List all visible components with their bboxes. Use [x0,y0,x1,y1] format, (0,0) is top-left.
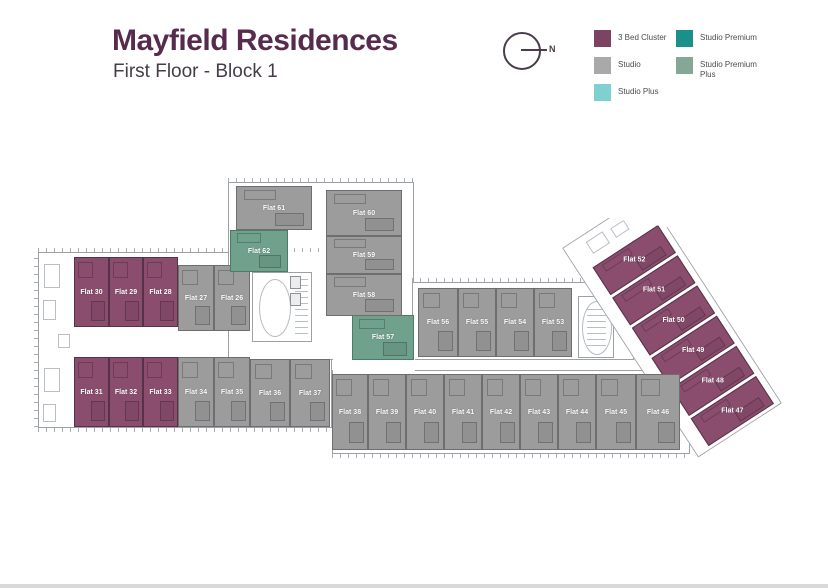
flat-unit-label: Flat 26 [221,295,243,302]
lift-shaft [290,276,301,289]
flat-unit-61[interactable]: Flat 61 [236,186,312,230]
flat-unit-37[interactable]: Flat 37 [290,359,330,427]
flat-unit-label: Flat 58 [353,292,375,299]
flat-unit-label: Flat 50 [662,317,684,324]
flat-unit-54[interactable]: Flat 54 [496,288,534,357]
flat-unit-43[interactable]: Flat 43 [520,374,558,450]
edge-ticks [332,454,690,458]
flat-unit-34[interactable]: Flat 34 [178,357,214,427]
flat-unit-label: Flat 35 [221,389,243,396]
flat-unit-27[interactable]: Flat 27 [178,265,214,331]
flat-unit-38[interactable]: Flat 38 [332,374,368,450]
flat-unit-56[interactable]: Flat 56 [418,288,458,357]
flat-unit-label: Flat 52 [623,257,645,264]
flat-unit-30[interactable]: Flat 30 [74,257,109,327]
flat-unit-label: Flat 40 [414,409,436,416]
flat-unit-label: Flat 46 [647,409,669,416]
flat-unit-label: Flat 27 [185,295,207,302]
flat-unit-label: Flat 29 [115,289,137,296]
stair-oval [259,279,291,337]
lift-shaft [290,293,301,306]
flat-unit-label: Flat 43 [528,409,550,416]
flat-unit-33[interactable]: Flat 33 [143,357,178,427]
flat-unit-label: Flat 44 [566,409,588,416]
page-bottom-border [0,584,828,588]
furniture-outline [44,368,60,392]
stair-steps [587,309,606,347]
flat-unit-29[interactable]: Flat 29 [109,257,143,327]
flat-unit-label: Flat 61 [263,205,285,212]
flat-unit-label: Flat 31 [80,389,102,396]
edge-ticks [38,428,332,432]
flat-unit-41[interactable]: Flat 41 [444,374,482,450]
flat-unit-label: Flat 36 [259,390,281,397]
flat-unit-55[interactable]: Flat 55 [458,288,496,357]
flat-unit-label: Flat 28 [149,289,171,296]
flat-unit-label: Flat 56 [427,319,449,326]
flat-unit-label: Flat 41 [452,409,474,416]
flat-unit-60[interactable]: Flat 60 [326,190,402,236]
furniture-outline [44,264,60,288]
flat-unit-label: Flat 37 [299,390,321,397]
flat-unit-32[interactable]: Flat 32 [109,357,143,427]
flat-unit-62[interactable]: Flat 62 [230,230,288,272]
flat-unit-26[interactable]: Flat 26 [214,265,250,331]
flat-unit-label: Flat 30 [80,289,102,296]
flat-unit-label: Flat 49 [682,347,704,354]
stairwell-core [252,272,312,342]
furniture-outline [610,220,629,238]
flat-unit-46[interactable]: Flat 46 [636,374,680,450]
flat-unit-45[interactable]: Flat 45 [596,374,636,450]
flat-unit-40[interactable]: Flat 40 [406,374,444,450]
flat-unit-label: Flat 59 [353,252,375,259]
flat-unit-label: Flat 54 [504,319,526,326]
flat-unit-label: Flat 45 [605,409,627,416]
flat-unit-31[interactable]: Flat 31 [74,357,109,427]
edge-ticks [34,253,38,427]
flat-unit-28[interactable]: Flat 28 [143,257,178,327]
furniture-outline [43,404,56,422]
furniture-outline [586,231,610,254]
flat-unit-35[interactable]: Flat 35 [214,357,250,427]
flat-unit-label: Flat 38 [339,409,361,416]
flat-unit-42[interactable]: Flat 42 [482,374,520,450]
edge-ticks [228,178,414,182]
flat-unit-label: Flat 32 [115,389,137,396]
flat-unit-label: Flat 33 [149,389,171,396]
flat-unit-44[interactable]: Flat 44 [558,374,596,450]
flat-unit-57[interactable]: Flat 57 [352,315,414,360]
flat-unit-53[interactable]: Flat 53 [534,288,572,357]
flat-unit-label: Flat 57 [372,334,394,341]
flat-unit-label: Flat 62 [248,248,270,255]
furniture-outline [58,334,70,348]
flat-unit-label: Flat 48 [702,377,724,384]
floorplan-page: Mayfield Residences First Floor - Block … [0,0,828,588]
flat-unit-label: Flat 53 [542,319,564,326]
flat-unit-36[interactable]: Flat 36 [250,359,290,427]
floor-plan: Flat 47Flat 48Flat 49Flat 50Flat 51Flat … [0,0,828,588]
flat-unit-59[interactable]: Flat 59 [326,236,402,274]
flat-unit-label: Flat 60 [353,210,375,217]
flat-unit-label: Flat 51 [643,287,665,294]
flat-unit-label: Flat 55 [466,319,488,326]
flat-unit-label: Flat 34 [185,389,207,396]
furniture-outline [43,300,56,320]
flat-unit-label: Flat 42 [490,409,512,416]
flat-unit-label: Flat 39 [376,409,398,416]
flat-unit-label: Flat 47 [721,408,743,415]
flat-unit-58[interactable]: Flat 58 [326,274,402,316]
flat-unit-39[interactable]: Flat 39 [368,374,406,450]
